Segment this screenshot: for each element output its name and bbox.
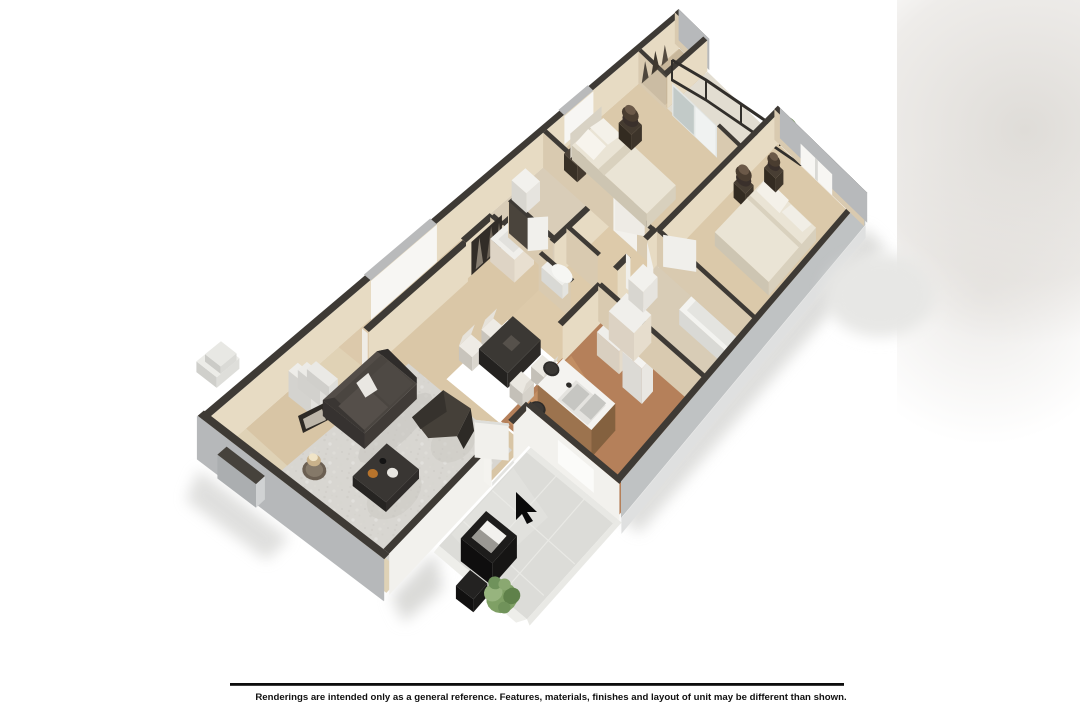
- svg-text:Renderings are intended only a: Renderings are intended only as a genera…: [255, 692, 846, 703]
